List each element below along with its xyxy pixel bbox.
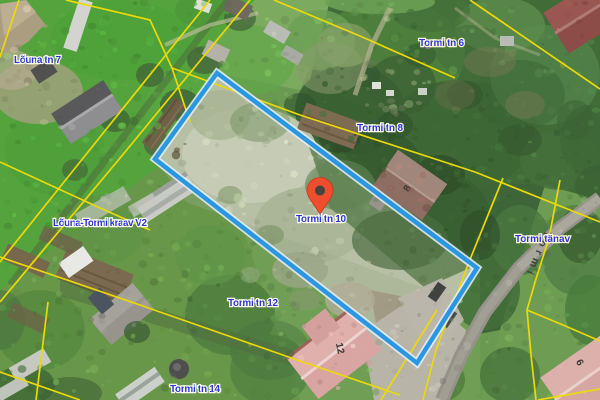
svg-text:Tormi tn 14: Tormi tn 14 <box>170 384 220 395</box>
svg-text:Lõuna-Tormi kraav V2: Lõuna-Tormi kraav V2 <box>53 218 147 229</box>
svg-text:Tormi tänav: Tormi tänav <box>515 234 570 245</box>
svg-text:Tormi tn 12: Tormi tn 12 <box>228 298 278 309</box>
svg-text:Lõuna tn 7: Lõuna tn 7 <box>14 55 61 66</box>
svg-text:Tormi tn 8: Tormi tn 8 <box>357 123 403 134</box>
svg-text:Tormi tn 6: Tormi tn 6 <box>419 38 464 49</box>
svg-text:Tormi tn 10: Tormi tn 10 <box>296 214 346 225</box>
